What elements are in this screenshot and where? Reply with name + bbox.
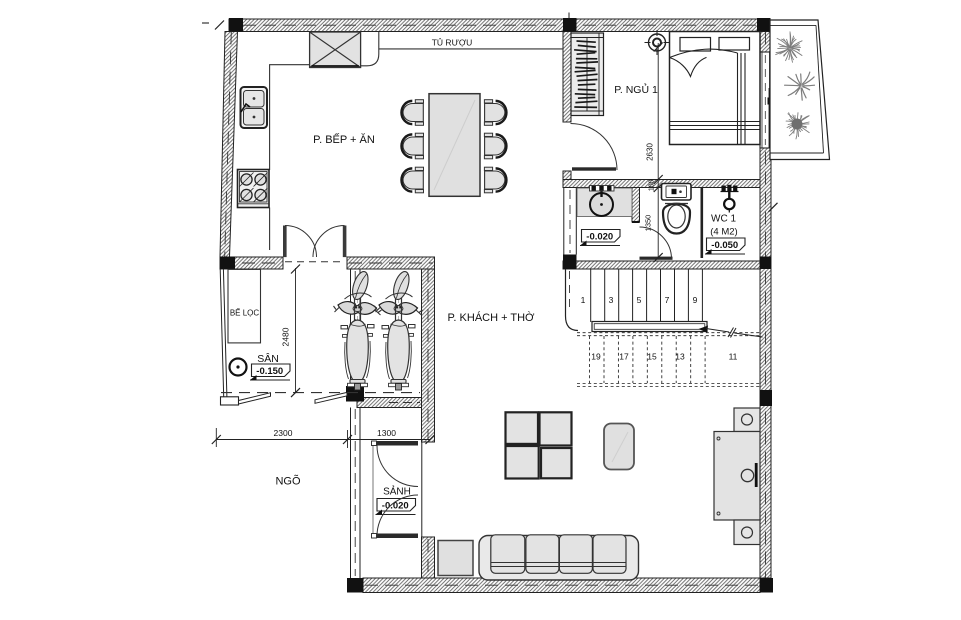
svg-text:SẢNH: SẢNH	[383, 485, 411, 498]
svg-text:1: 1	[581, 295, 586, 305]
svg-text:P. KHÁCH + THỜ: P. KHÁCH + THỜ	[448, 311, 536, 324]
svg-text:-0.150: -0.150	[256, 366, 283, 377]
svg-text:P. NGỦ 1: P. NGỦ 1	[614, 83, 658, 96]
svg-text:NGÕ: NGÕ	[275, 475, 301, 488]
svg-text:3: 3	[609, 295, 614, 305]
svg-text:-0.020: -0.020	[586, 232, 613, 243]
svg-text:2300: 2300	[274, 428, 293, 438]
svg-text:9: 9	[693, 295, 698, 305]
svg-text:1300: 1300	[377, 428, 396, 438]
svg-text:100: 100	[649, 179, 656, 191]
svg-text:WC 1: WC 1	[711, 214, 736, 225]
svg-text:17: 17	[619, 352, 629, 362]
svg-text:11: 11	[729, 352, 738, 362]
svg-text:SÂN: SÂN	[257, 352, 279, 365]
svg-text:19: 19	[591, 352, 601, 362]
svg-text:-0.050: -0.050	[711, 240, 738, 251]
svg-text:13: 13	[675, 352, 685, 362]
svg-text:1350: 1350	[644, 215, 653, 232]
svg-text:P. BẾP + ĂN: P. BẾP + ĂN	[313, 133, 375, 146]
svg-text:BỂ LỌC: BỂ LỌC	[230, 309, 260, 318]
svg-text:2630: 2630	[646, 143, 655, 161]
svg-text:(4 M2): (4 M2)	[710, 227, 737, 238]
svg-text:15: 15	[647, 352, 657, 362]
svg-text:5: 5	[637, 295, 642, 305]
svg-text:2480: 2480	[281, 327, 291, 346]
svg-text:TỦ RƯỢU: TỦ RƯỢU	[432, 37, 473, 48]
svg-text:7: 7	[665, 295, 670, 305]
